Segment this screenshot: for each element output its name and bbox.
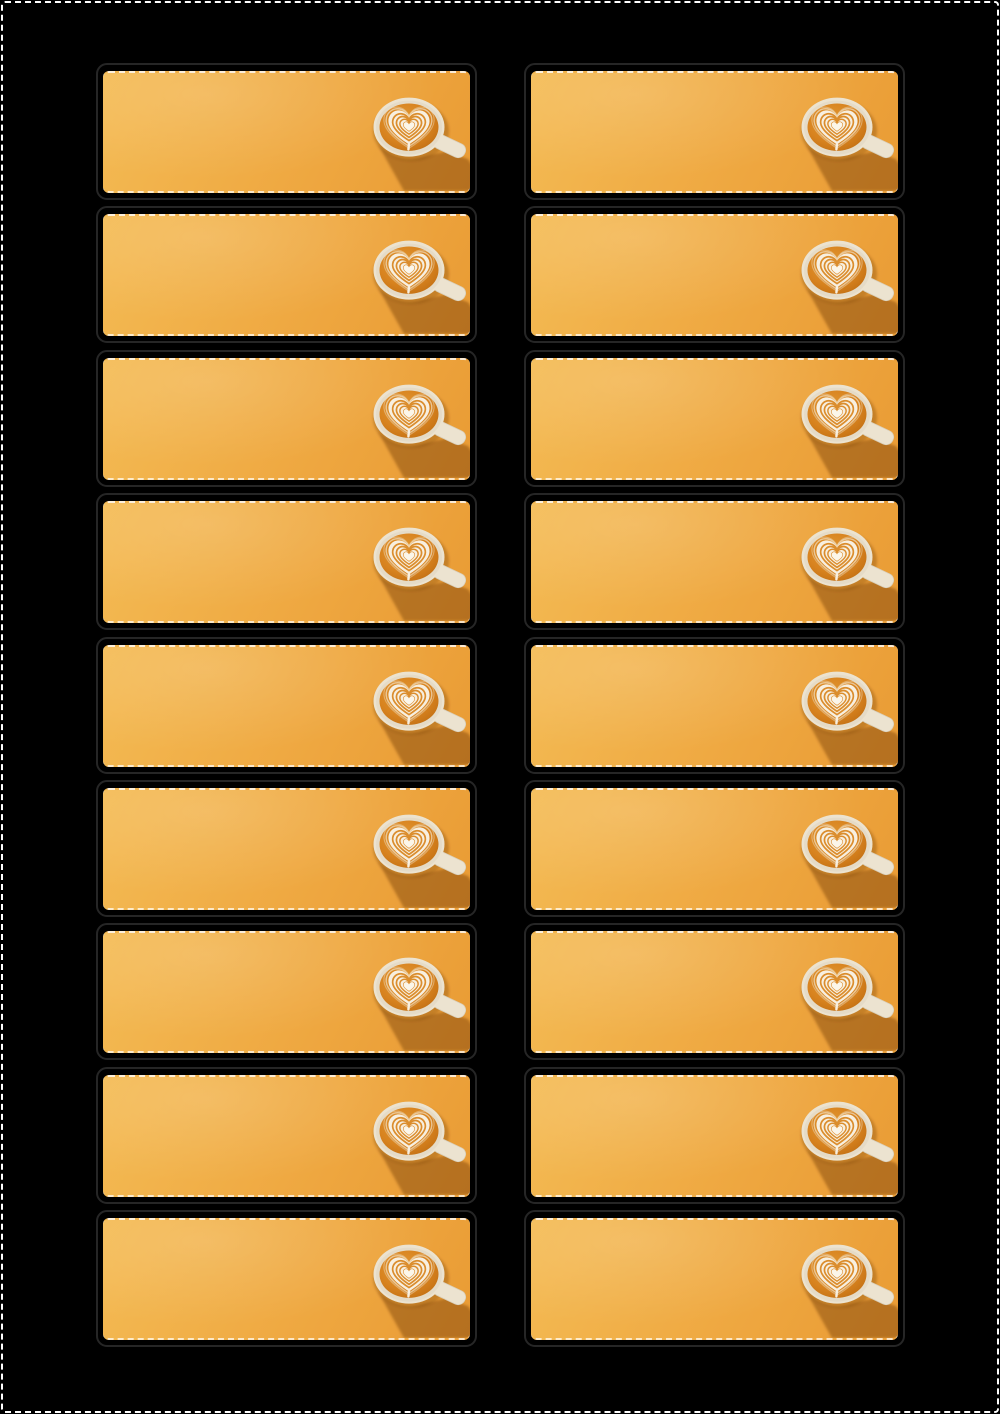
latte-cup-icon [103, 790, 470, 908]
business-card[interactable] [96, 63, 477, 200]
business-card[interactable] [96, 350, 477, 487]
business-card[interactable] [96, 1067, 477, 1204]
latte-cup-icon [531, 647, 898, 765]
latte-cup-icon [531, 1220, 898, 1338]
business-card[interactable] [96, 780, 477, 917]
card-photo-latte [103, 645, 470, 767]
card-photo-latte [531, 501, 898, 623]
latte-cup-icon [103, 1220, 470, 1338]
card-photo-latte [103, 788, 470, 910]
card-photo-latte [531, 214, 898, 336]
business-card[interactable] [524, 493, 905, 630]
card-photo-latte [103, 358, 470, 480]
card-grid [96, 63, 905, 1347]
latte-cup-icon [531, 503, 898, 621]
card-photo-latte [531, 788, 898, 910]
card-photo-latte [531, 358, 898, 480]
latte-cup-icon [103, 933, 470, 1051]
card-photo-latte [531, 71, 898, 193]
card-photo-latte [103, 931, 470, 1053]
business-card[interactable] [96, 637, 477, 774]
card-photo-latte [103, 71, 470, 193]
latte-cup-icon [531, 790, 898, 908]
business-card[interactable] [524, 206, 905, 343]
latte-cup-icon [103, 360, 470, 478]
card-photo-latte [531, 1075, 898, 1197]
business-card[interactable] [524, 63, 905, 200]
latte-cup-icon [103, 216, 470, 334]
business-card[interactable] [524, 780, 905, 917]
latte-cup-icon [103, 503, 470, 621]
business-card[interactable] [524, 350, 905, 487]
latte-cup-icon [531, 216, 898, 334]
business-card[interactable] [96, 493, 477, 630]
business-card[interactable] [524, 923, 905, 1060]
card-photo-latte [103, 214, 470, 336]
latte-cup-icon [531, 360, 898, 478]
latte-cup-icon [531, 933, 898, 1051]
business-card[interactable] [524, 1210, 905, 1347]
business-card[interactable] [96, 1210, 477, 1347]
card-photo-latte [103, 1075, 470, 1197]
latte-cup-icon [103, 73, 470, 191]
business-card[interactable] [96, 923, 477, 1060]
latte-cup-icon [103, 1077, 470, 1195]
business-card[interactable] [96, 206, 477, 343]
business-card[interactable] [524, 637, 905, 774]
business-card[interactable] [524, 1067, 905, 1204]
card-photo-latte [531, 1218, 898, 1340]
card-photo-latte [103, 1218, 470, 1340]
latte-cup-icon [531, 73, 898, 191]
latte-cup-icon [103, 647, 470, 765]
card-photo-latte [103, 501, 470, 623]
latte-cup-icon [531, 1077, 898, 1195]
card-photo-latte [531, 931, 898, 1053]
card-photo-latte [531, 645, 898, 767]
